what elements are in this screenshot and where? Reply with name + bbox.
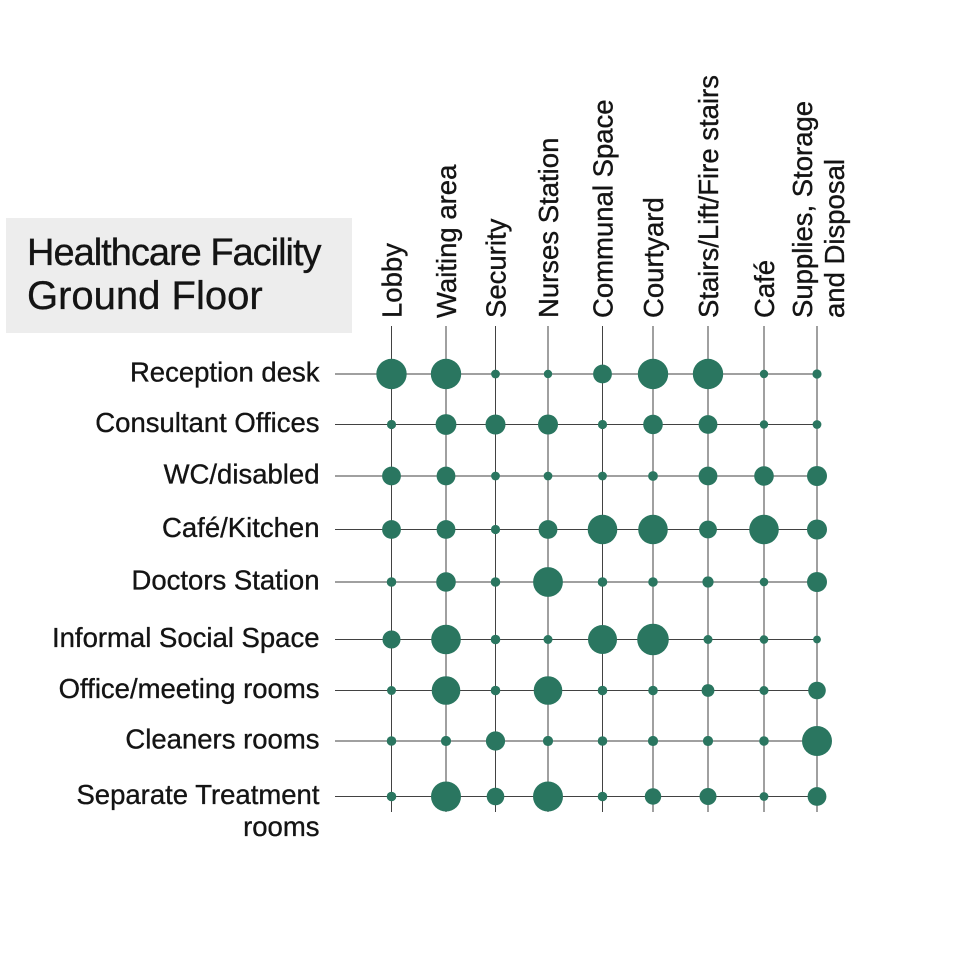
svg-text:Office/meeting rooms: Office/meeting rooms: [59, 673, 320, 704]
svg-text:Cleaners rooms: Cleaners rooms: [125, 724, 319, 755]
svg-text:Courtyard: Courtyard: [638, 197, 669, 318]
svg-text:Stairs/Lift/Fire stairs: Stairs/Lift/Fire stairs: [693, 75, 724, 318]
svg-text:Café/Kitchen: Café/Kitchen: [162, 512, 319, 543]
svg-text:Security: Security: [481, 218, 512, 318]
svg-text:Waiting area: Waiting area: [431, 164, 462, 318]
svg-text:rooms: rooms: [243, 811, 319, 842]
svg-text:Consultant Offices: Consultant Offices: [95, 407, 319, 438]
svg-text:WC/disabled: WC/disabled: [164, 459, 320, 490]
svg-text:Separate Treatment: Separate Treatment: [76, 779, 319, 810]
svg-text:Doctors Station: Doctors Station: [131, 565, 319, 596]
svg-text:Supplies, Storage: Supplies, Storage: [787, 101, 818, 318]
svg-text:Nurses Station: Nurses Station: [533, 138, 564, 318]
svg-text:Café: Café: [749, 260, 780, 318]
svg-text:Lobby: Lobby: [377, 243, 408, 318]
svg-text:Communal Space: Communal Space: [588, 99, 619, 318]
svg-text:Informal Social Space: Informal Social Space: [52, 622, 320, 653]
svg-text:and Disposal: and Disposal: [819, 159, 850, 318]
svg-text:Reception desk: Reception desk: [130, 357, 320, 388]
svg-text:Ground Floor: Ground Floor: [27, 274, 263, 318]
svg-text:Healthcare Facility: Healthcare Facility: [27, 232, 322, 274]
